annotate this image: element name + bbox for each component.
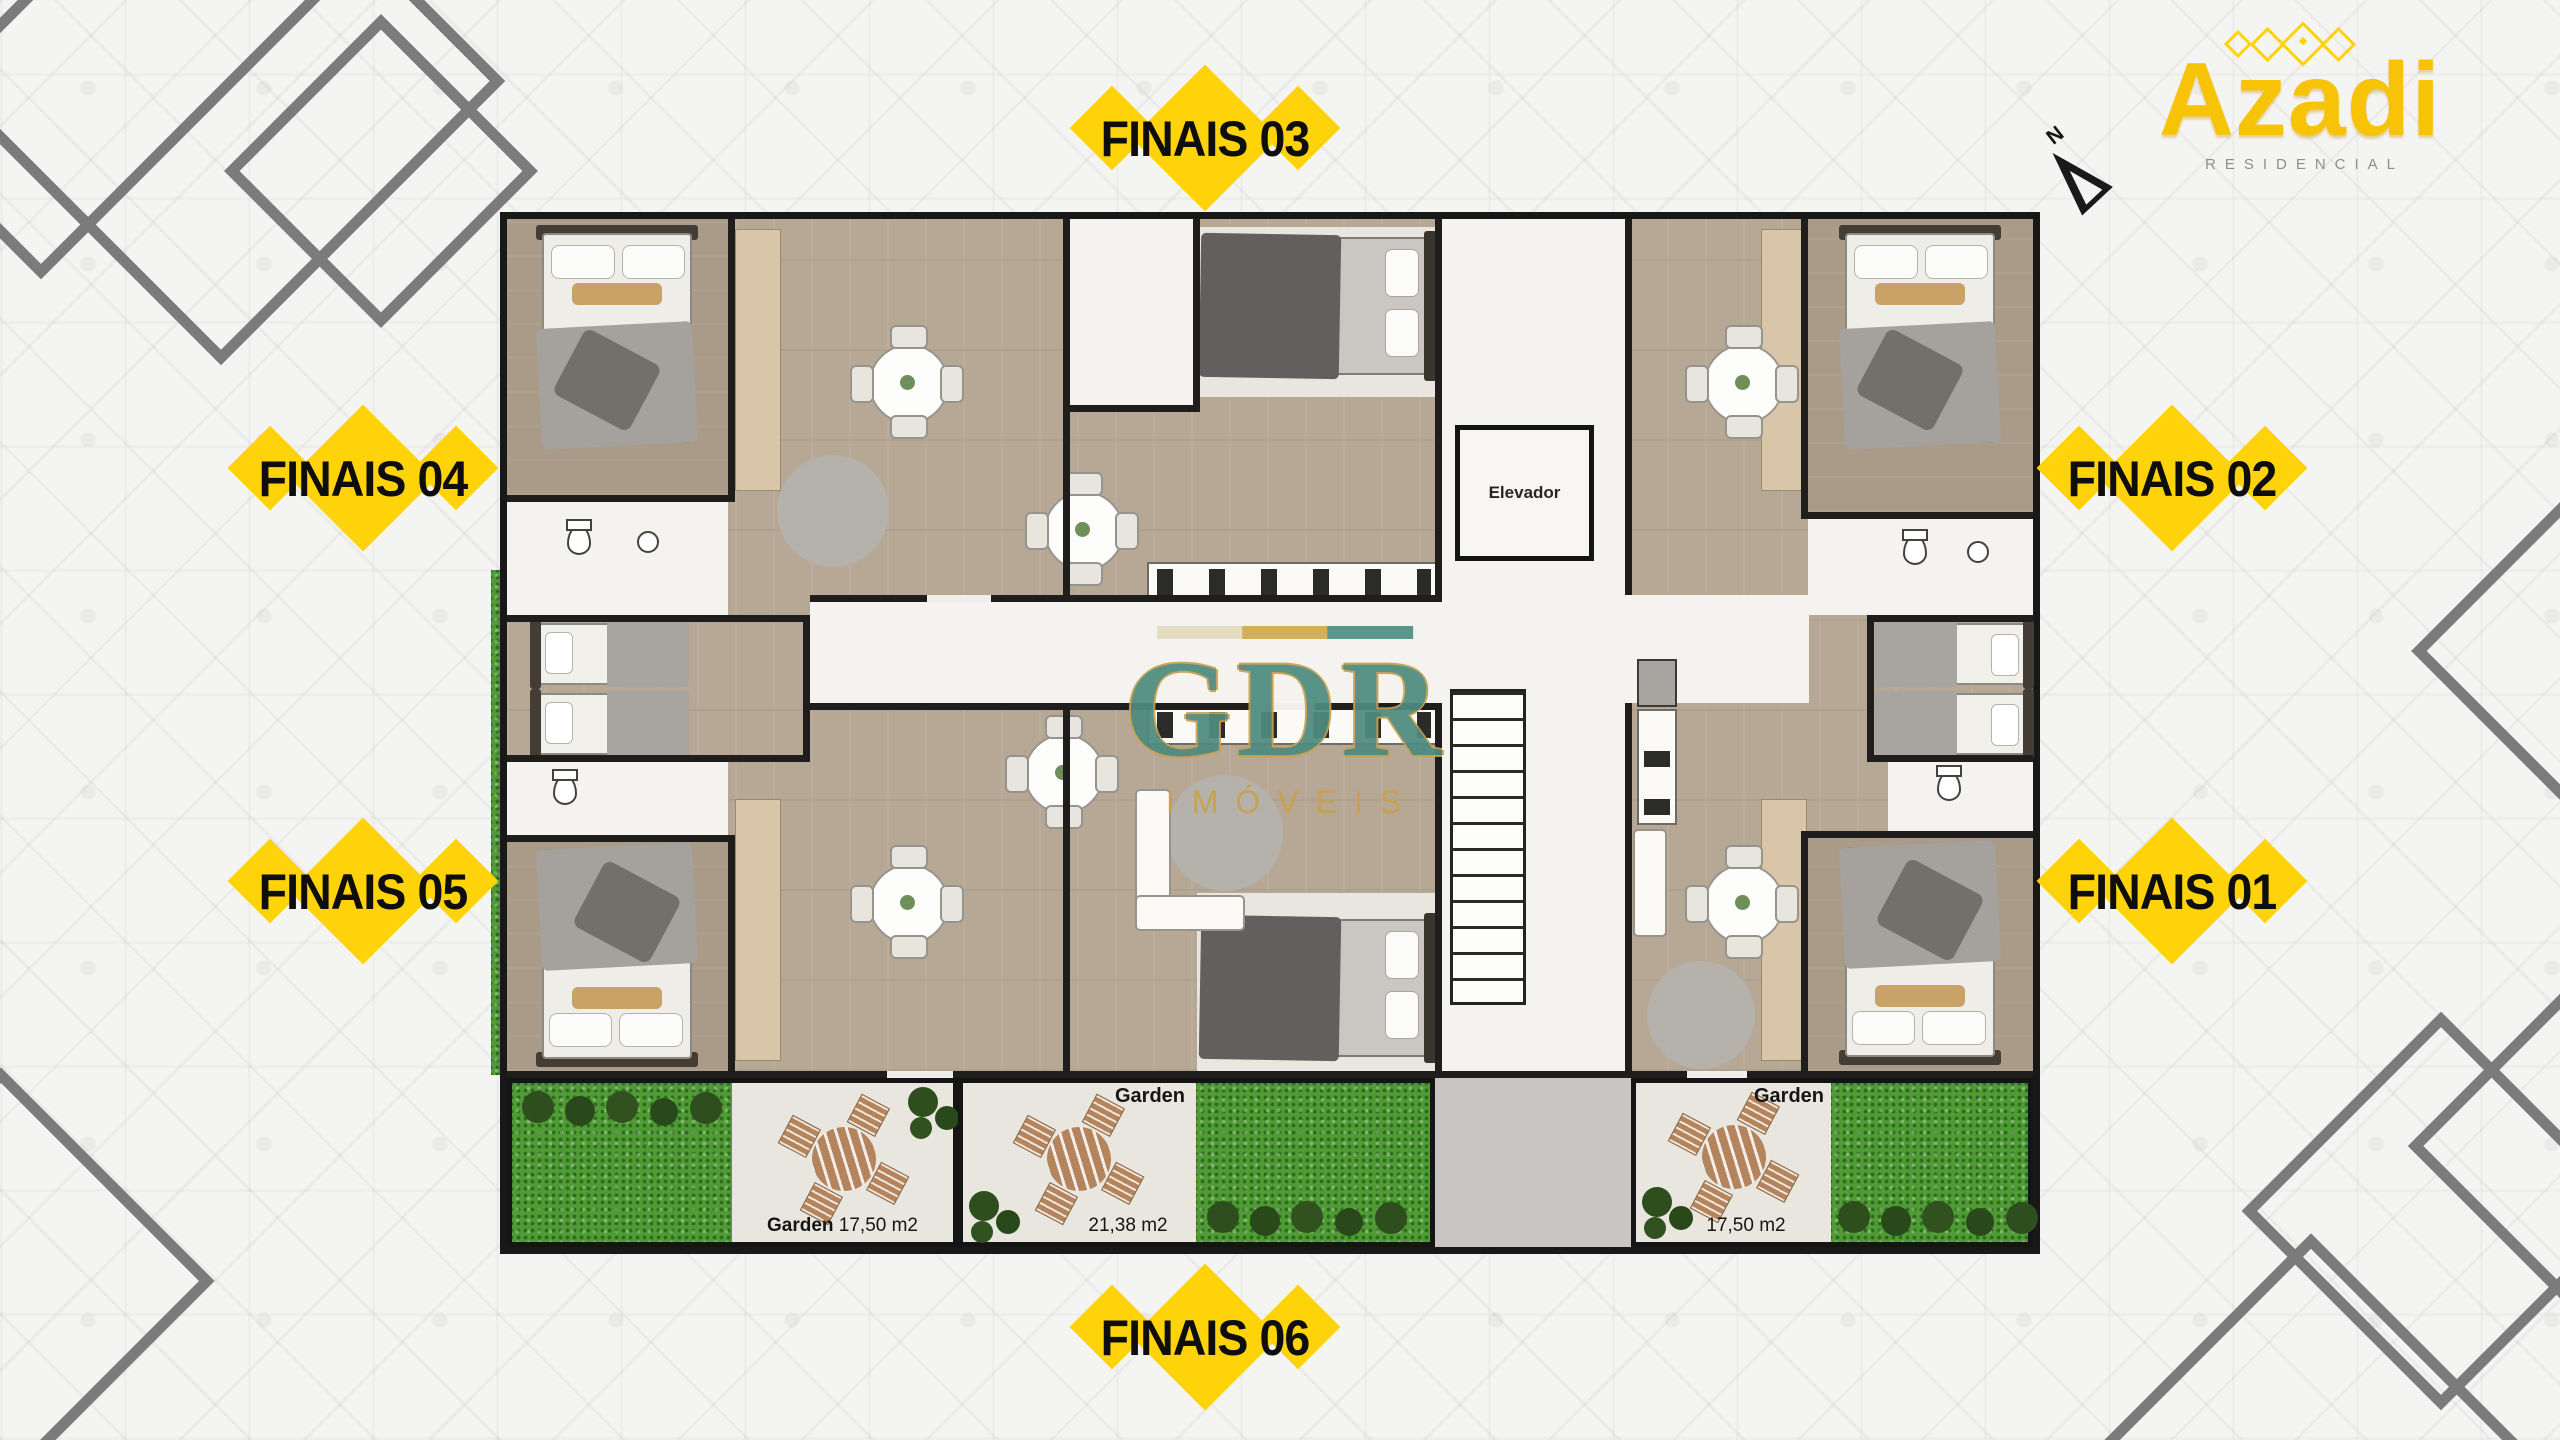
gray-double-bed [1204, 237, 1429, 375]
wall [1193, 219, 1200, 409]
marketing-floorplan-image: Elevador Garden 17,50 m2 Garden 21,38 [0, 0, 2560, 1440]
bathroom-top-left [507, 502, 728, 615]
toilet-icon [1903, 535, 1927, 565]
sofa [1633, 829, 1667, 937]
watermark-subtitle: IMÓVEIS [1124, 784, 1446, 821]
door-gap [927, 595, 991, 602]
dining-table-set [1027, 474, 1137, 584]
unit-label-finais-03: FINAIS 03 [1035, 54, 1375, 234]
unit-label-text: FINAIS 01 [2014, 863, 2330, 921]
garden-wall [507, 1071, 2033, 1078]
closet [735, 229, 781, 491]
dining-table-set [1687, 327, 1797, 437]
unit-label-finais-04: FINAIS 04 [193, 394, 533, 574]
bush-row [1207, 1201, 1239, 1233]
wall [1867, 755, 2033, 762]
garden-middle: Garden 21,38 m2 [958, 1078, 1435, 1247]
logo-tagline: RESIDENCIAL [2085, 156, 2515, 173]
garden-name: Garden [1754, 1085, 1824, 1108]
single-bed [1877, 693, 2027, 755]
garden-area: 21,38 m2 [1063, 1215, 1193, 1237]
dining-table-set [1007, 717, 1117, 827]
watermark-title: GDR [1124, 639, 1446, 780]
wall [1801, 831, 1808, 1071]
bush-row [1838, 1201, 1870, 1233]
bush-cluster [1642, 1187, 1672, 1217]
wall [507, 835, 735, 842]
dining-table-set [852, 327, 962, 437]
sofa [1135, 895, 1245, 931]
diamond-outline-icon [2321, 26, 2356, 61]
unit-label-text: FINAIS 02 [2014, 450, 2330, 508]
garden-name: Garden [1115, 1085, 1185, 1108]
core-wall [1625, 219, 1632, 595]
elevator-label: Elevador [1489, 483, 1561, 503]
area-rug [777, 455, 889, 567]
corridor-wall [810, 595, 1442, 602]
unit-label-text: FINAIS 04 [205, 450, 521, 508]
single-bed [537, 623, 687, 685]
unit-label-text: FINAIS 03 [1047, 110, 1363, 168]
unit-label-text: FINAIS 05 [205, 863, 521, 921]
wall [803, 615, 810, 762]
single-bed [537, 693, 687, 755]
diamond-outline-icon [2224, 30, 2252, 58]
unit-label-finais-05: FINAIS 05 [193, 807, 533, 987]
wall [507, 615, 810, 622]
wall [728, 219, 735, 495]
core-wall [1625, 703, 1632, 1071]
laundry-room [1067, 219, 1197, 409]
double-bed [542, 233, 692, 443]
sink-icon [1967, 541, 1989, 563]
wall [1867, 615, 2033, 622]
refrigerator [1637, 659, 1677, 707]
single-bed [1877, 623, 2027, 685]
staircase [1450, 689, 1526, 1005]
double-bed [542, 849, 692, 1059]
sink-icon [637, 531, 659, 553]
door-gap [1687, 1071, 1747, 1078]
core-wall [1435, 219, 1442, 595]
wall [507, 495, 735, 502]
garden-left-label: Garden 17,50 m2 [732, 1215, 953, 1237]
wall [728, 835, 735, 1071]
azadi-logo: Azadi RESIDENCIAL [2085, 8, 2515, 193]
logo-diamonds-icon [2228, 28, 2351, 60]
wall [1808, 831, 2033, 838]
watermark: GDR IMÓVEIS [1124, 626, 1446, 821]
wall [507, 755, 810, 762]
toilet-icon [553, 775, 577, 805]
wall [1067, 405, 1200, 412]
wall [1867, 615, 1874, 762]
gray-double-bed [1204, 919, 1429, 1057]
kitchen-counter [1637, 709, 1677, 825]
double-bed [1845, 233, 1995, 443]
closet [735, 799, 781, 1061]
garden-left: Garden 17,50 m2 [507, 1078, 958, 1247]
toilet-icon [567, 525, 591, 555]
unit-label-finais-06: FINAIS 06 [1035, 1253, 1375, 1433]
wall [1063, 703, 1070, 1071]
garden-name: Garden [767, 1215, 834, 1236]
bush-row [522, 1091, 554, 1123]
double-bed [1845, 847, 1995, 1057]
bush-cluster [908, 1087, 938, 1117]
bush-cluster [969, 1191, 999, 1221]
dining-table-set [1687, 847, 1797, 957]
unit-label-finais-02: FINAIS 02 [2002, 394, 2342, 574]
wall [1808, 512, 2033, 519]
door-gap [887, 1071, 953, 1078]
elevator-room: Elevador [1455, 425, 1594, 561]
area-rug [1647, 961, 1755, 1069]
north-arrow: N [2040, 122, 2140, 242]
garden-area: 17,50 m2 [1676, 1215, 1816, 1237]
walkway [1435, 1078, 1631, 1247]
wall [1801, 219, 1808, 519]
unit-label-finais-01: FINAIS 01 [2002, 807, 2342, 987]
garden-right: Garden 17,50 m2 [1631, 1078, 2033, 1247]
unit-label-text: FINAIS 06 [1047, 1309, 1363, 1367]
toilet-icon [1937, 771, 1961, 801]
diamond-outline-icon [2280, 21, 2325, 66]
garden-area: 17,50 m2 [839, 1215, 918, 1236]
bathroom-mid-left [507, 762, 728, 835]
dining-table-set [852, 847, 962, 957]
